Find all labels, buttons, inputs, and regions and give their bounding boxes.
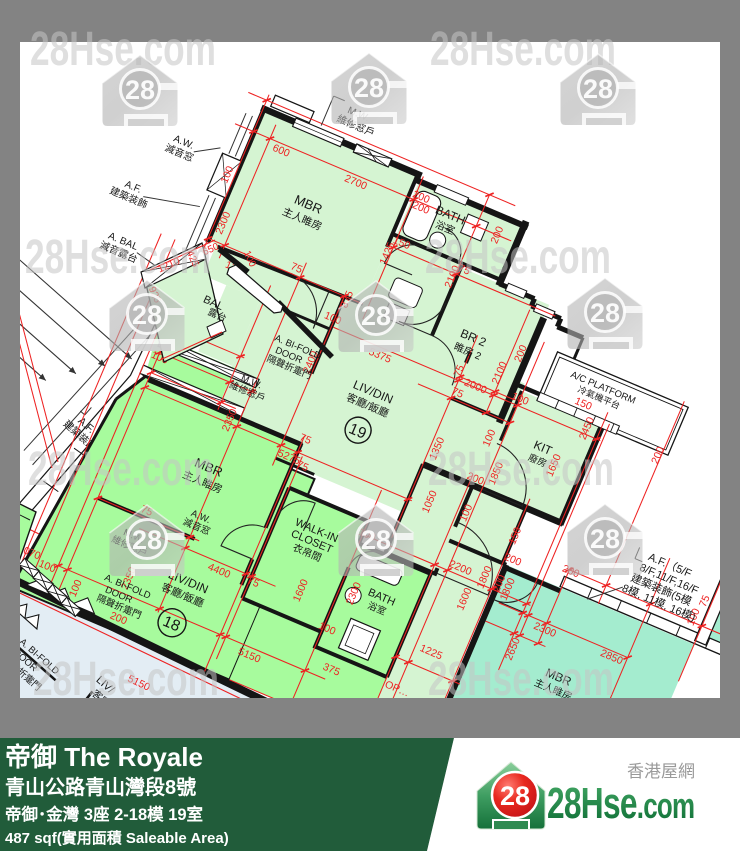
svg-text:28Hse.com: 28Hse.com xyxy=(547,779,694,828)
svg-text:28Hse.com: 28Hse.com xyxy=(28,443,214,496)
svg-text:青山公路青山灣段8號: 青山公路青山灣段8號 xyxy=(5,775,196,799)
svg-text:帝御･金灣 3座 2-18模 19室: 帝御･金灣 3座 2-18模 19室 xyxy=(5,804,203,824)
svg-text:28Hse.com: 28Hse.com xyxy=(428,443,614,496)
svg-text:香港屋網: 香港屋網 xyxy=(627,762,695,781)
svg-text:28Hse.com: 28Hse.com xyxy=(33,653,219,706)
svg-text:28Hse.com: 28Hse.com xyxy=(425,231,611,284)
svg-text:帝御 The Royale: 帝御 The Royale xyxy=(5,742,203,772)
svg-text:28Hse.com: 28Hse.com xyxy=(25,231,211,284)
svg-text:487 sqf(實用面積 Saleable Area): 487 sqf(實用面積 Saleable Area) xyxy=(5,829,229,847)
svg-text:28Hse.com: 28Hse.com xyxy=(428,653,614,706)
svg-text:28: 28 xyxy=(500,781,530,811)
